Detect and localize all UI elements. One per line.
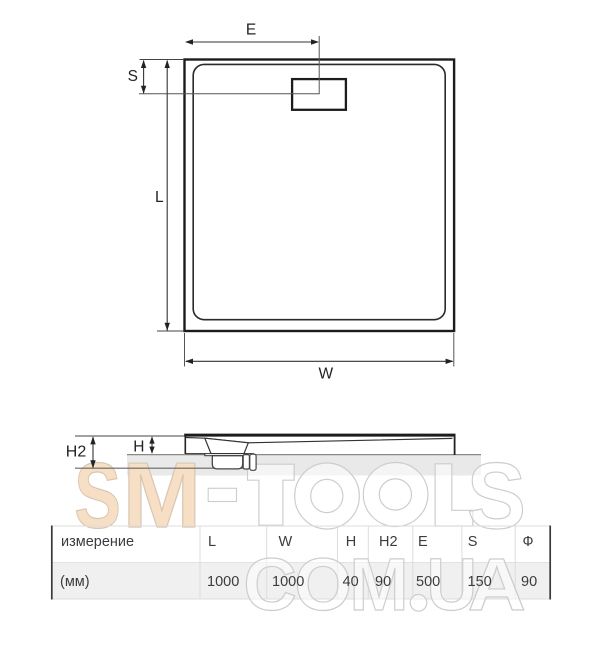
svg-text:W: W [279,534,293,550]
svg-text:1000: 1000 [207,574,239,590]
svg-text:W: W [318,366,333,383]
svg-text:500: 500 [416,574,440,590]
svg-text:H: H [133,439,144,456]
svg-text:150: 150 [468,574,492,590]
svg-text:H: H [346,534,356,550]
svg-text:E: E [246,22,256,39]
svg-text:H2: H2 [66,444,87,461]
svg-text:90: 90 [375,574,391,590]
svg-text:1000: 1000 [272,574,304,590]
svg-text:90: 90 [521,574,537,590]
svg-text:L: L [155,189,164,206]
svg-text:S: S [467,443,526,548]
svg-text:L: L [208,534,216,550]
svg-text:H2: H2 [379,534,398,550]
svg-text:S: S [128,68,138,85]
svg-text:Ф: Ф [523,534,534,550]
svg-text:M: M [123,442,201,546]
svg-text:E: E [418,534,428,550]
svg-text:S: S [468,534,478,550]
svg-text:(мм): (мм) [60,574,90,590]
svg-text:измерение: измерение [61,534,134,550]
svg-text:40: 40 [343,574,359,590]
